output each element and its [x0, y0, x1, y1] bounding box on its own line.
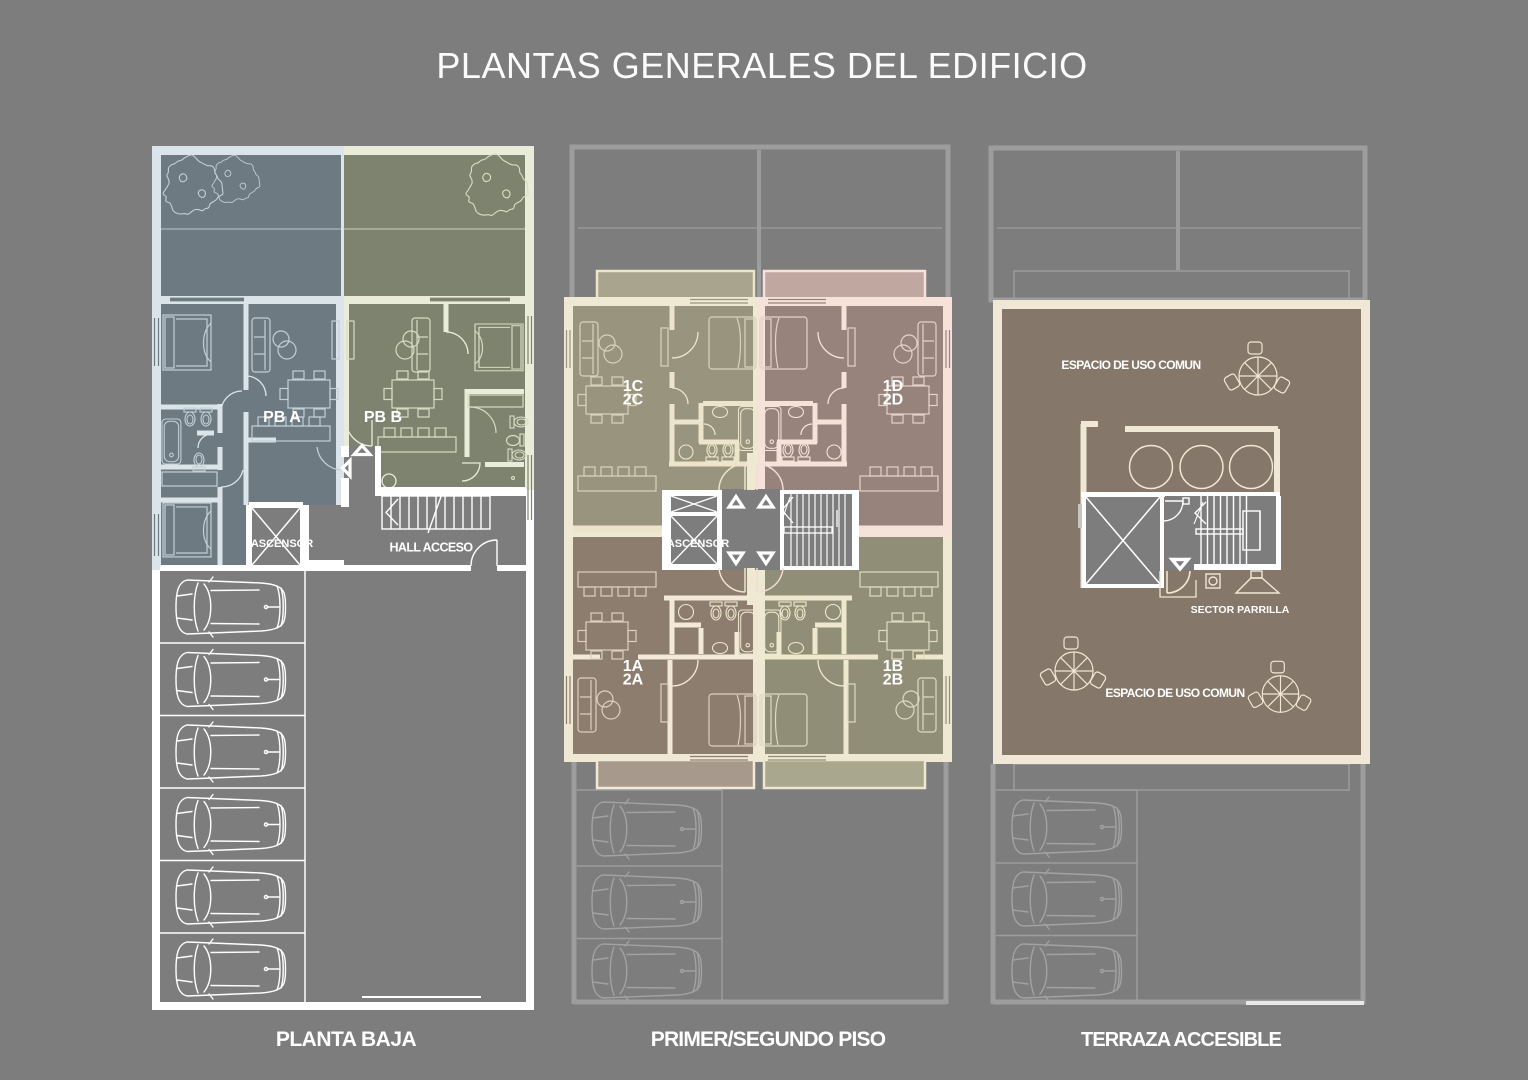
svg-text:ESPACIO DE USO COMUN: ESPACIO DE USO COMUN — [1105, 686, 1244, 700]
svg-text:2C: 2C — [623, 392, 644, 409]
svg-text:ASCENSOR: ASCENSOR — [251, 538, 313, 550]
svg-text:PRIMER/SEGUNDO PISO: PRIMER/SEGUNDO PISO — [651, 1028, 886, 1051]
svg-text:PLANTAS GENERALES DEL EDIFICIO: PLANTAS GENERALES DEL EDIFICIO — [436, 45, 1087, 86]
svg-text:2A: 2A — [623, 672, 644, 689]
svg-text:SECTOR PARRILLA: SECTOR PARRILLA — [1191, 604, 1290, 616]
svg-text:HALL ACCESO: HALL ACCESO — [390, 541, 474, 555]
svg-text:PB B: PB B — [364, 409, 402, 426]
svg-text:2D: 2D — [883, 392, 903, 409]
svg-text:TERRAZA ACCESIBLE: TERRAZA ACCESIBLE — [1081, 1029, 1281, 1051]
svg-text:PLANTA BAJA: PLANTA BAJA — [276, 1028, 417, 1051]
svg-text:ESPACIO DE USO COMUN: ESPACIO DE USO COMUN — [1061, 358, 1200, 372]
svg-text:PB A: PB A — [263, 409, 301, 426]
svg-text:2B: 2B — [883, 672, 903, 689]
svg-text:ASCENSOR: ASCENSOR — [667, 538, 729, 550]
